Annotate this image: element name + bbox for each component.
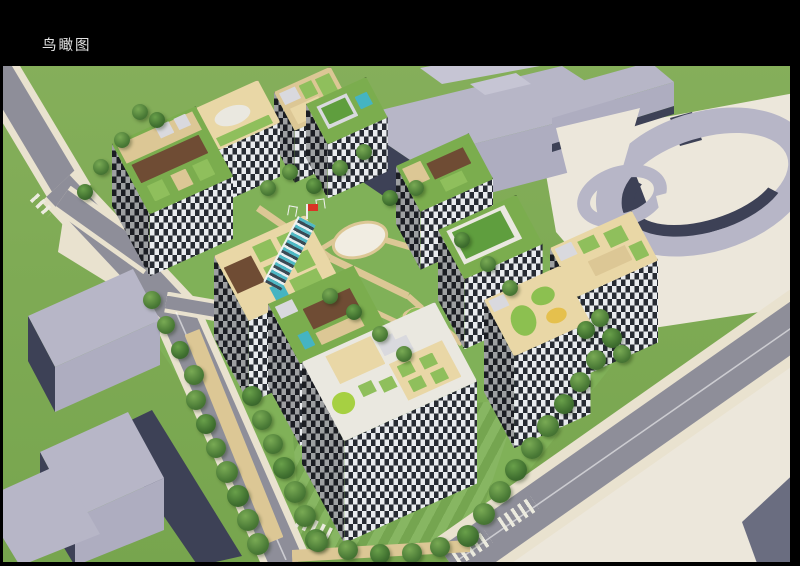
- tree: [489, 481, 511, 503]
- tree: [480, 256, 496, 272]
- frame-right: [790, 0, 800, 566]
- rendering-page: 鸟瞰图: [0, 0, 800, 566]
- tree: [171, 341, 189, 359]
- tree: [252, 410, 272, 430]
- tree: [227, 485, 249, 507]
- tree: [396, 346, 412, 362]
- red-flag: [308, 204, 318, 211]
- frame-top: [0, 0, 800, 66]
- tree: [284, 481, 306, 503]
- tree: [306, 178, 322, 194]
- tree: [570, 372, 590, 392]
- tree: [242, 386, 262, 406]
- tree: [149, 112, 165, 128]
- tree: [260, 180, 276, 196]
- tree: [402, 543, 422, 563]
- tree: [93, 159, 109, 175]
- tree: [184, 365, 204, 385]
- tree: [338, 540, 358, 560]
- tree: [372, 326, 388, 342]
- tree: [457, 525, 479, 547]
- page-title: 鸟瞰图: [42, 34, 92, 55]
- tree: [308, 532, 328, 552]
- tree: [356, 144, 372, 160]
- aerial-rendering: [0, 0, 800, 566]
- tree: [132, 104, 148, 120]
- tree: [294, 505, 316, 527]
- tree: [408, 180, 424, 196]
- frame-bottom: [0, 562, 800, 566]
- frame-left: [0, 0, 3, 566]
- tree: [237, 509, 259, 531]
- tree: [157, 316, 175, 334]
- tree: [346, 304, 362, 320]
- tree: [554, 394, 574, 414]
- tree: [322, 288, 338, 304]
- tree: [382, 190, 398, 206]
- tree: [263, 434, 283, 454]
- tree: [206, 438, 226, 458]
- tree: [454, 232, 470, 248]
- tree: [143, 291, 161, 309]
- tree: [505, 459, 527, 481]
- tree: [370, 544, 390, 564]
- tree: [196, 414, 216, 434]
- white-goal-frame: [287, 205, 298, 216]
- tree: [282, 164, 298, 180]
- tree: [247, 533, 269, 555]
- tree: [537, 415, 559, 437]
- tree: [332, 160, 348, 176]
- tree: [114, 132, 130, 148]
- tree: [186, 390, 206, 410]
- tree: [586, 350, 606, 370]
- tree: [502, 280, 518, 296]
- tree: [521, 437, 543, 459]
- tree: [273, 457, 295, 479]
- tree: [613, 345, 631, 363]
- tree: [591, 309, 609, 327]
- tree: [216, 461, 238, 483]
- tree: [473, 503, 495, 525]
- tree: [430, 537, 450, 557]
- tree: [77, 184, 93, 200]
